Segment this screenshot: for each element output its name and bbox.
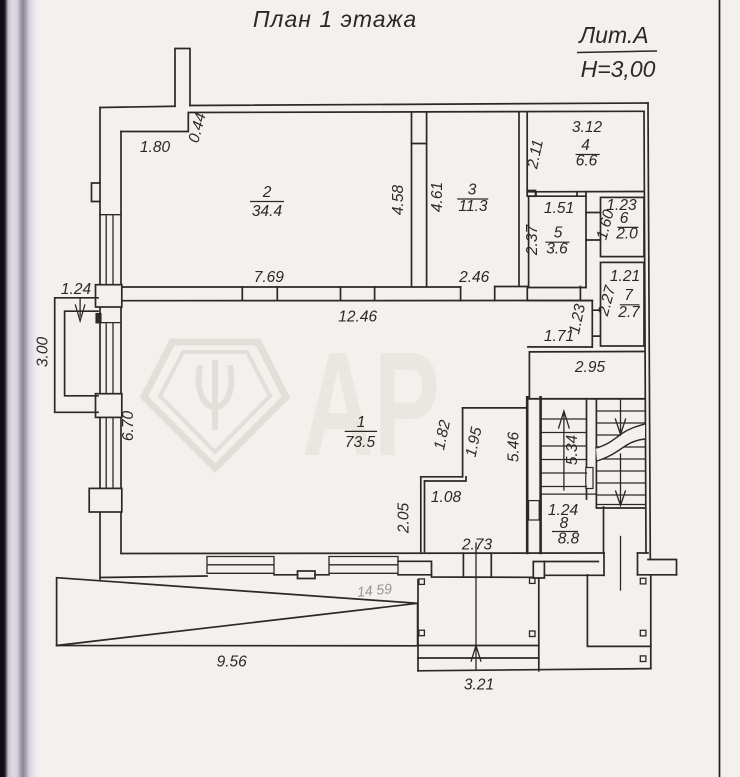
svg-text:2.37: 2.37: [524, 224, 541, 257]
svg-text:1.24: 1.24: [61, 281, 92, 298]
svg-text:2.73: 2.73: [461, 537, 493, 554]
svg-text:1.08: 1.08: [431, 489, 462, 506]
svg-text:2.7: 2.7: [617, 304, 641, 321]
svg-text:2.95: 2.95: [574, 359, 606, 376]
svg-text:3.6: 3.6: [546, 240, 568, 257]
svg-text:4: 4: [581, 137, 590, 154]
svg-text:4.58: 4.58: [390, 185, 407, 216]
svg-text:7: 7: [624, 287, 634, 304]
svg-text:Лит.А: Лит.А: [577, 22, 648, 48]
svg-text:3: 3: [468, 182, 477, 199]
svg-text:34.4: 34.4: [252, 203, 283, 220]
svg-text:1.71: 1.71: [544, 328, 574, 345]
svg-text:2.46: 2.46: [458, 269, 490, 286]
svg-text:9.56: 9.56: [217, 654, 248, 671]
svg-text:2.05: 2.05: [396, 503, 413, 535]
svg-text:1.51: 1.51: [544, 200, 574, 217]
svg-text:2: 2: [262, 184, 272, 201]
svg-text:1.80: 1.80: [140, 139, 171, 156]
svg-text:1.21: 1.21: [610, 268, 640, 285]
svg-text:1: 1: [357, 414, 366, 431]
svg-text:8.8: 8.8: [558, 531, 580, 548]
svg-text:Н=3,00: Н=3,00: [581, 56, 656, 82]
svg-text:5: 5: [554, 225, 563, 242]
svg-text:План 1 этажа: План 1 этажа: [253, 6, 417, 32]
svg-text:8: 8: [560, 515, 569, 532]
svg-text:11.3: 11.3: [458, 198, 487, 215]
svg-text:7.69: 7.69: [254, 269, 285, 286]
svg-text:6.70: 6.70: [120, 411, 137, 442]
svg-text:5.46: 5.46: [506, 432, 523, 463]
svg-text:12.46: 12.46: [338, 309, 377, 326]
svg-text:6: 6: [620, 210, 629, 227]
svg-text:4.61: 4.61: [429, 182, 446, 212]
svg-text:3.21: 3.21: [464, 677, 494, 694]
svg-text:73.5: 73.5: [345, 434, 376, 451]
svg-text:5.34: 5.34: [564, 435, 581, 466]
svg-text:АР: АР: [302, 322, 440, 487]
svg-text:3.00: 3.00: [35, 337, 52, 368]
svg-text:3.12: 3.12: [572, 119, 603, 136]
svg-text:2.0: 2.0: [615, 226, 638, 243]
